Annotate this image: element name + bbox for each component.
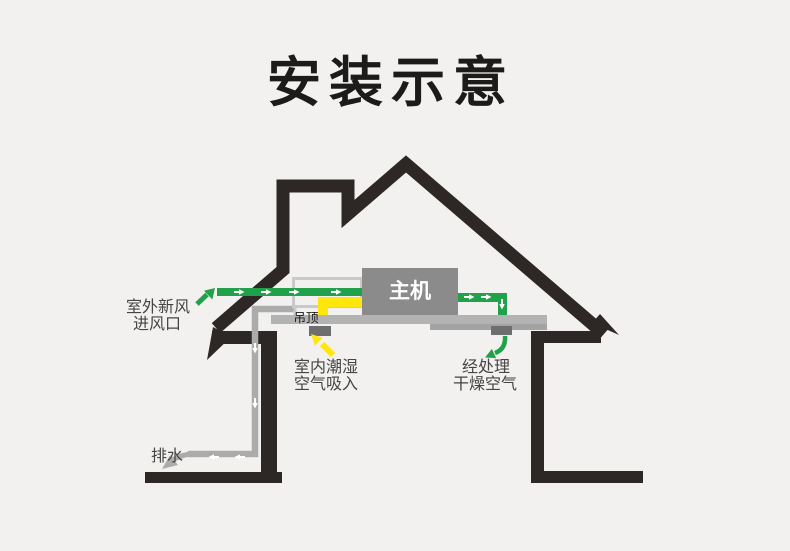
page-title: 安装示意 [267, 53, 515, 113]
ceiling-label: 吊顶 [293, 311, 319, 325]
indoor-humid-air-label: 室内潮湿 空气吸入 [294, 358, 358, 393]
left-floor [145, 472, 282, 483]
right-floor [531, 471, 643, 483]
drain-label: 排水 [151, 447, 183, 465]
outdoor-fresh-air-label: 室外新风 进风口 [126, 298, 190, 333]
processed-dry-air-label: 经处理 干燥空气 [453, 358, 517, 393]
main-unit-label: 主机 [389, 279, 431, 303]
indoor-humid-air-label-line2: 空气吸入 [294, 375, 358, 393]
indoor-humid-air-label-line1: 室内潮湿 [294, 358, 358, 376]
outdoor-fresh-air-label-line1: 室外新风 [126, 298, 190, 316]
outdoor-fresh-air-label-line2: 进风口 [133, 315, 181, 333]
supply-air-vent [491, 326, 512, 335]
left-wall [261, 338, 277, 483]
processed-dry-air-label-line1: 经处理 [462, 358, 510, 376]
installation-diagram: 安装示意 [0, 0, 790, 551]
ceiling-shadow [430, 324, 547, 330]
right-wall [531, 340, 544, 483]
processed-dry-air-label-line2: 干燥空气 [453, 375, 517, 393]
main-unit: 主机 [362, 268, 458, 315]
